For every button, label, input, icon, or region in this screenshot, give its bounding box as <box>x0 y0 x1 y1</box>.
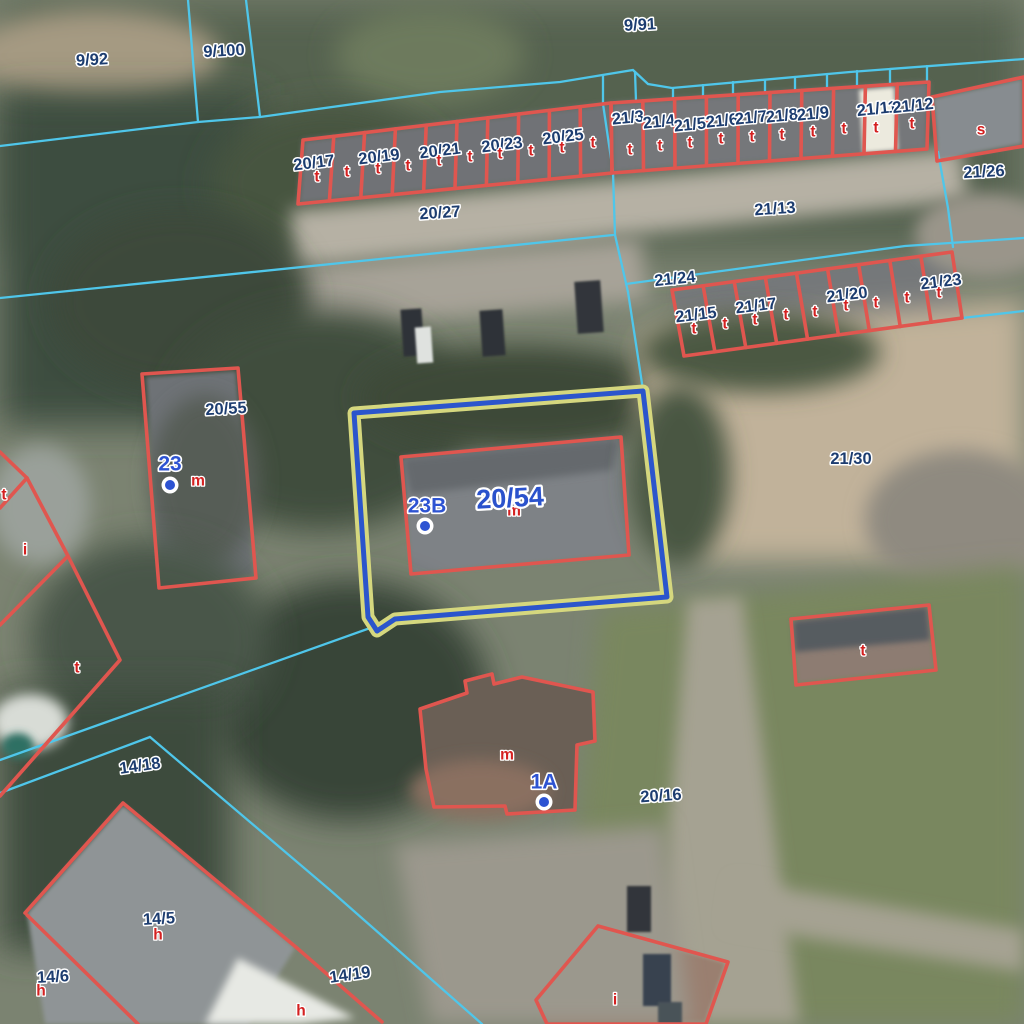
photo-texture <box>658 1002 682 1024</box>
map-viewport[interactable]: 9/919/929/10020/1720/1920/2120/2320/2521… <box>0 0 1024 1024</box>
photo-texture <box>2 733 34 759</box>
landuse-marker-label: t <box>657 138 662 155</box>
landuse-marker-label: t <box>687 135 692 152</box>
landuse-marker-label: t <box>779 127 784 144</box>
landuse-marker-label: t <box>467 149 472 166</box>
landuse-marker-label: t <box>936 285 941 302</box>
parcel-label: 21/7 <box>734 107 768 128</box>
landuse-marker-label: t <box>74 660 79 677</box>
address-point-dot <box>420 521 430 531</box>
photo-texture <box>627 886 651 932</box>
landuse-marker-label: t <box>873 120 878 137</box>
parcel-label: 20/55 <box>205 399 247 419</box>
landuse-marker-label: m <box>500 747 514 764</box>
landuse-marker-label: t <box>909 116 914 133</box>
landuse-marker-label: t <box>843 298 848 315</box>
parcel-label: 9/100 <box>203 41 245 61</box>
parcel-label: 21/9 <box>796 103 830 124</box>
garage-divider <box>770 93 771 162</box>
landuse-marker-label: t <box>344 164 349 181</box>
landuse-marker-label: t <box>691 321 696 338</box>
garage-divider <box>864 86 865 154</box>
landuse-marker-label: t <box>841 121 846 138</box>
landuse-marker-label: s <box>977 122 986 139</box>
photo-texture <box>574 280 604 334</box>
landuse-marker-label: t <box>718 131 723 148</box>
landuse-marker-label: t <box>904 290 909 307</box>
landuse-marker-label: h <box>296 1003 305 1020</box>
landuse-marker-label: i <box>613 992 617 1009</box>
parcel-label: 9/91 <box>623 15 656 35</box>
parcel-label: 21/4 <box>642 111 677 132</box>
parcel-label: 21/3 <box>611 107 645 128</box>
parcel-label: 21/26 <box>963 162 1005 182</box>
photo-texture <box>643 954 671 1006</box>
landuse-marker-label: h <box>153 927 162 944</box>
landuse-marker-label: t <box>749 129 754 146</box>
map-canvas[interactable]: 9/919/929/10020/1720/1920/2120/2320/2521… <box>0 0 1024 1024</box>
address-number-label: 23 <box>158 453 181 476</box>
parcel-label: 21/30 <box>830 450 871 468</box>
address-number-label: 1A <box>531 771 558 794</box>
address-point-dot <box>539 797 549 807</box>
landuse-marker-label: t <box>590 135 595 152</box>
parcel-label: 9/92 <box>75 50 108 70</box>
garage-divider <box>801 90 802 158</box>
selected-parcel-label: 20/54 <box>475 481 544 514</box>
landuse-marker-label: t <box>436 153 441 170</box>
landuse-marker-label: t <box>528 143 533 160</box>
landuse-marker-label: t <box>627 142 632 159</box>
photo-texture <box>415 326 433 363</box>
parcel-label: 21/13 <box>754 199 796 220</box>
landuse-marker-label: t <box>1 487 6 504</box>
landuse-marker-label: t <box>405 158 410 175</box>
garage-divider <box>896 84 898 151</box>
landuse-marker-label: t <box>375 161 380 178</box>
landuse-marker-label: t <box>314 169 319 186</box>
landuse-marker-label: t <box>559 140 564 157</box>
address-number-label: 23B <box>408 495 447 518</box>
landuse-marker-label: h <box>36 983 45 1000</box>
parcel-label: 20/27 <box>419 203 461 224</box>
boundary-line <box>635 72 636 101</box>
parcel-label: 21/5 <box>673 114 707 135</box>
landuse-marker-label: t <box>812 304 817 321</box>
landuse-marker-label: t <box>810 124 815 141</box>
landuse-marker-label: t <box>722 316 727 333</box>
parcel-label: 21/8 <box>765 105 799 126</box>
landuse-marker-label: t <box>752 312 757 329</box>
photo-texture <box>335 7 525 103</box>
parcel-label: 20/16 <box>640 786 682 807</box>
landuse-marker-label: t <box>860 643 865 660</box>
landuse-marker-label: t <box>783 307 788 324</box>
landuse-marker-label: t <box>497 146 502 163</box>
landuse-marker-label: i <box>23 542 27 559</box>
garage-divider <box>833 88 834 156</box>
address-point-dot <box>165 480 175 490</box>
landuse-marker-label: t <box>873 295 878 312</box>
landuse-marker-label: m <box>191 473 205 490</box>
photo-texture <box>479 309 505 356</box>
